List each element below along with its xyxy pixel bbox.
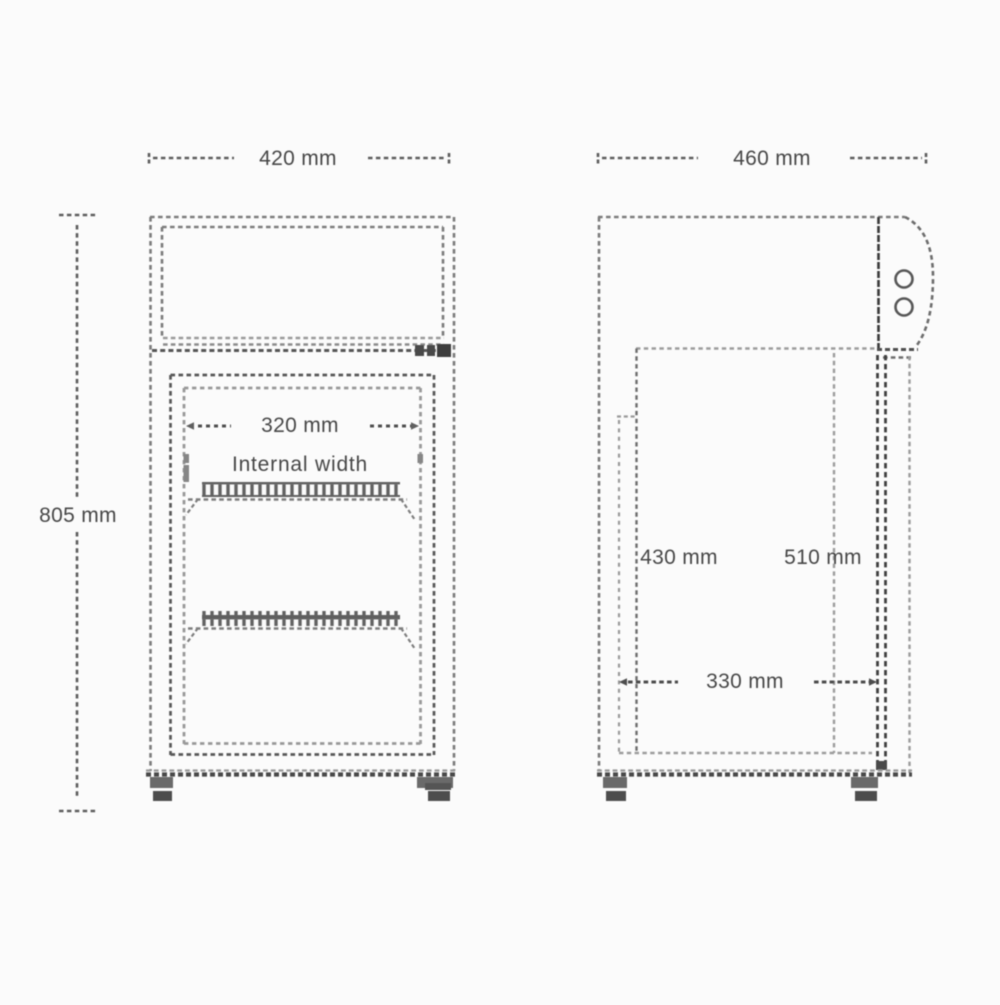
- svg-text:805 mm: 805 mm: [39, 504, 117, 527]
- svg-text:Internal width: Internal width: [232, 453, 368, 476]
- svg-text:420 mm: 420 mm: [259, 147, 337, 170]
- svg-text:510 mm: 510 mm: [784, 546, 862, 569]
- svg-text:320 mm: 320 mm: [261, 414, 339, 437]
- svg-text:460 mm: 460 mm: [733, 147, 811, 170]
- svg-text:430 mm: 430 mm: [640, 546, 718, 569]
- svg-text:330 mm: 330 mm: [706, 670, 784, 693]
